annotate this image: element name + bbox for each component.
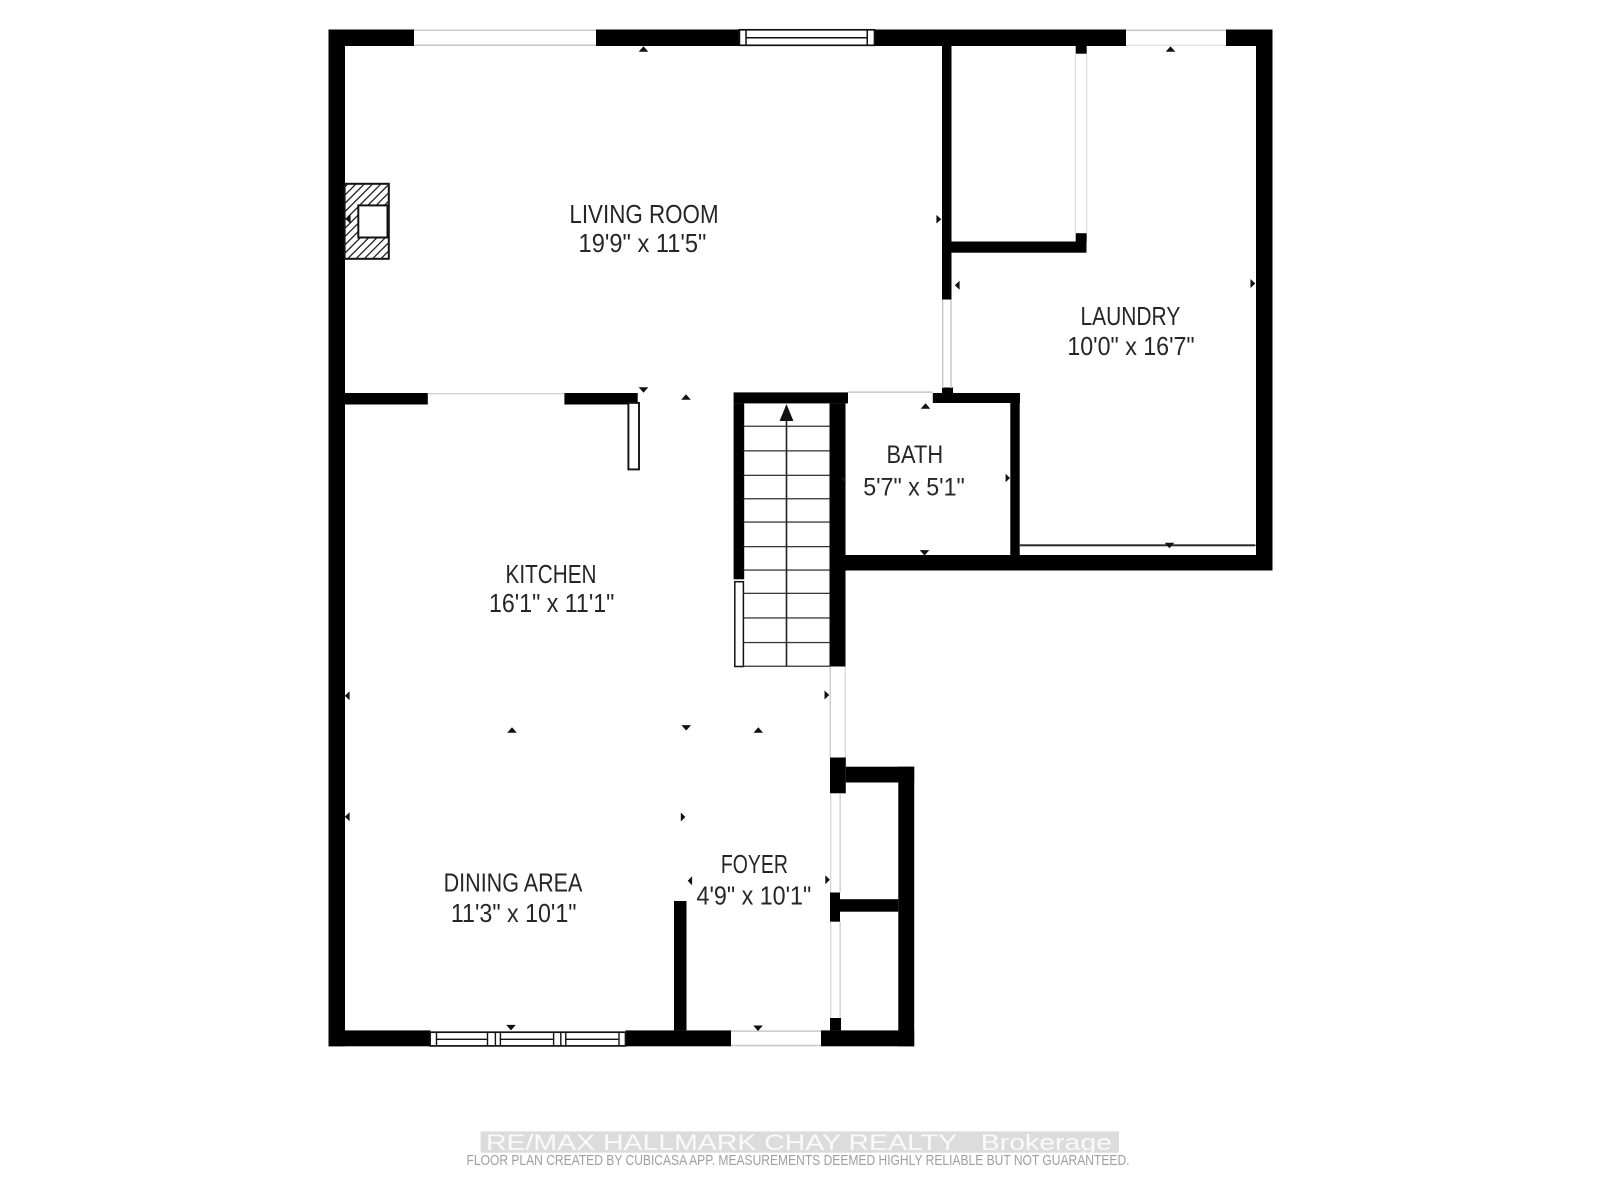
svg-text:KITCHEN: KITCHEN xyxy=(506,561,597,589)
svg-text:FOYER: FOYER xyxy=(721,851,788,879)
svg-text:BATH: BATH xyxy=(887,441,944,469)
svg-text:DINING AREA: DINING AREA xyxy=(444,868,583,898)
svg-text:LIVING ROOM: LIVING ROOM xyxy=(569,199,718,229)
svg-text:11'3" x 10'1": 11'3" x 10'1" xyxy=(451,898,577,928)
svg-text:4'9" x 10'1": 4'9" x 10'1" xyxy=(697,883,812,911)
svg-text:16'1" x 11'1": 16'1" x 11'1" xyxy=(489,590,614,618)
svg-text:FLOOR PLAN CREATED BY CUBICASA: FLOOR PLAN CREATED BY CUBICASA APP. MEAS… xyxy=(467,1152,1130,1169)
svg-text:5'7" x 5'1": 5'7" x 5'1" xyxy=(863,474,965,502)
svg-text:10'0" x 16'7": 10'0" x 16'7" xyxy=(1067,331,1194,361)
svg-text:19'9" x 11'5": 19'9" x 11'5" xyxy=(579,228,707,258)
svg-text:LAUNDRY: LAUNDRY xyxy=(1081,301,1181,331)
